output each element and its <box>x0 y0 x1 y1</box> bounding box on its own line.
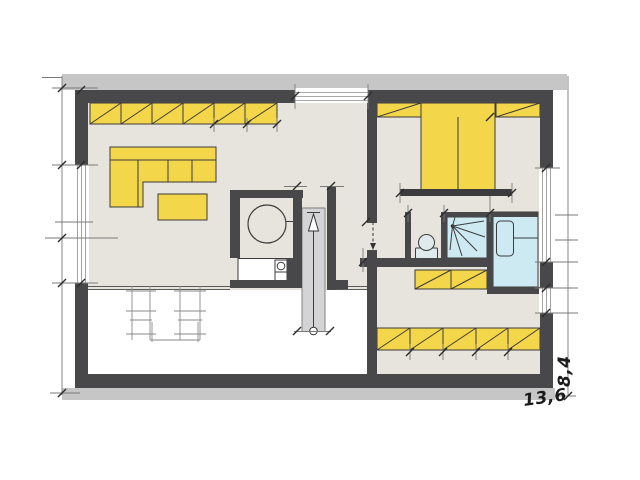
roof-band-bottom <box>62 388 555 400</box>
wall-left-lower <box>75 283 88 388</box>
wardrobe-strip-b <box>377 328 540 350</box>
wall-stair-right <box>327 186 336 290</box>
wall-tub-bottom <box>487 287 540 294</box>
wall-showerroom-bottom <box>230 280 302 288</box>
wall-showerroom-top <box>230 190 303 198</box>
coffee-table <box>158 194 207 220</box>
counter-module <box>275 272 287 281</box>
staircase <box>302 208 325 335</box>
wall-right-upper <box>540 90 553 168</box>
wall-tub-left <box>487 212 493 294</box>
wall-left-upper <box>75 90 88 165</box>
roof-band-top <box>62 74 567 90</box>
wall-right-lower <box>540 313 553 388</box>
wall-top-right <box>368 90 553 103</box>
wall-showerroom-left <box>230 190 240 258</box>
floor-plan-drawing: 13,6 8,4 <box>0 0 640 480</box>
wall-stair-foot <box>327 280 348 289</box>
wall-living-bedroom <box>367 100 377 223</box>
bed-foot-board <box>400 189 512 196</box>
wall-bath-bottom <box>360 258 487 267</box>
wall-dressing-left <box>367 263 377 374</box>
dimension-label-height: 8,4 <box>555 355 575 387</box>
wall-bottom <box>75 374 553 388</box>
wall-top-left <box>75 90 295 103</box>
floor-plan-canvas: 13,6 8,4 <box>0 0 640 480</box>
wall-showerroom-right <box>293 190 302 260</box>
toilet-bowl <box>419 235 435 251</box>
bathtub-unit <box>493 212 538 287</box>
stair-start-circle <box>310 327 318 335</box>
